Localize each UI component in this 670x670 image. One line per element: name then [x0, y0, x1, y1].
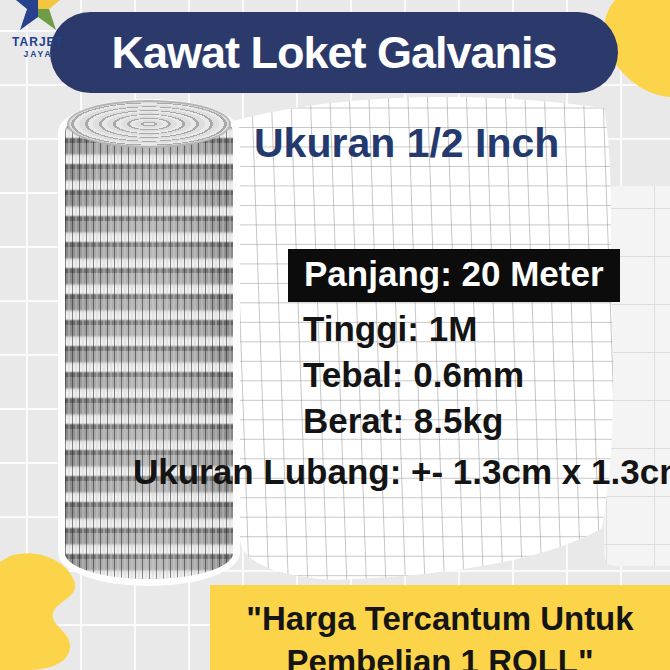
footer-line-2: Pembelian 1 ROLL" [210, 640, 670, 670]
spec-highlight-box: Panjang: 20 Meter [288, 249, 620, 302]
size-subtitle: Ukuran 1/2 Inch [254, 120, 559, 167]
wire-roll-image [65, 106, 233, 579]
star-icon [10, 0, 66, 36]
spec-line-height: Tinggi: 1M [303, 309, 477, 349]
product-banner: TARJET JAYA Kawat Loket Galvanis Ukuran … [0, 0, 670, 670]
spec-line-thickness: Tebal: 0.6mm [303, 355, 524, 395]
spec-hole-size: Ukuran Lubang: +- 1.3cm x 1.3cm [133, 452, 670, 492]
wire-roll-top [67, 100, 231, 148]
spec-line-weight: Berat: 8.5kg [303, 401, 503, 441]
brand-name: TARJET [0, 36, 76, 49]
footer-line-1: "Harga Tercantum Untuk [210, 597, 670, 640]
page-title: Kawat Loket Galvanis [111, 27, 556, 79]
title-banner: Kawat Loket Galvanis [50, 12, 618, 93]
footer-banner: "Harga Tercantum Untuk Pembelian 1 ROLL" [210, 585, 670, 670]
brand-logo: TARJET JAYA [0, 0, 76, 60]
brand-subname: JAYA [0, 49, 76, 60]
yellow-blob-bottom-left-icon [0, 550, 86, 670]
